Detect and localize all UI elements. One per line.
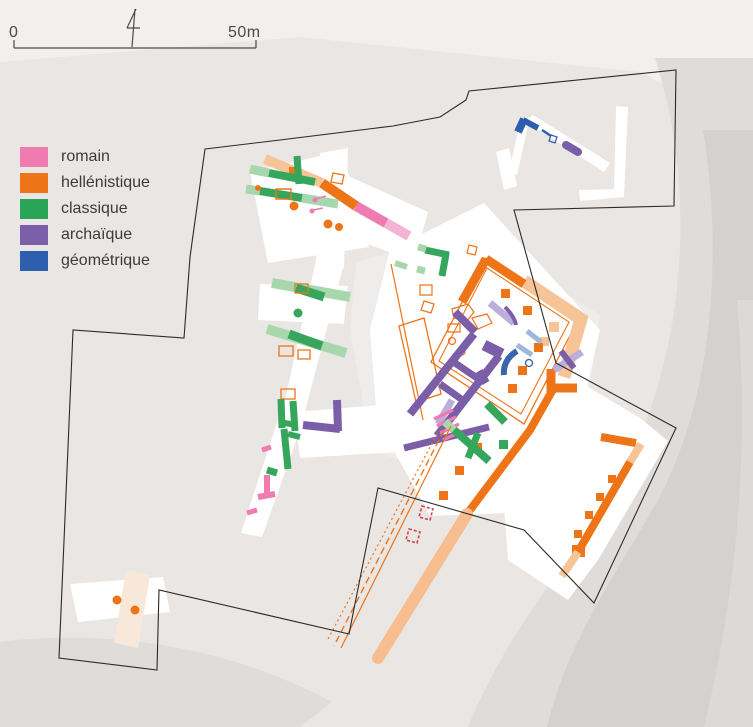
romain-swatch <box>20 147 48 167</box>
legend-item-archaique: archaïque <box>20 225 150 245</box>
hellenistique-swatch <box>20 173 48 193</box>
legend-label-classique: classique <box>61 200 128 218</box>
geometrique-swatch <box>20 251 48 271</box>
legend: romain hellénistique classique archaïque… <box>20 147 150 277</box>
archaique-swatch <box>20 225 48 245</box>
legend-label-geometrique: géométrique <box>61 252 150 270</box>
site-plan: 0 50m romain hellénistique classique arc… <box>0 0 753 727</box>
legend-item-geometrique: géométrique <box>20 251 150 271</box>
legend-item-classique: classique <box>20 199 150 219</box>
legend-item-hellenistique: hellénistique <box>20 173 150 193</box>
legend-item-romain: romain <box>20 147 150 167</box>
scalebar-zero-label: 0 <box>9 24 18 42</box>
map-svg <box>0 0 753 727</box>
legend-label-romain: romain <box>61 148 110 166</box>
classique-swatch <box>20 199 48 219</box>
legend-label-hellenistique: hellénistique <box>61 174 150 192</box>
scalebar-50m-label: 50m <box>228 24 261 42</box>
legend-label-archaique: archaïque <box>61 226 132 244</box>
